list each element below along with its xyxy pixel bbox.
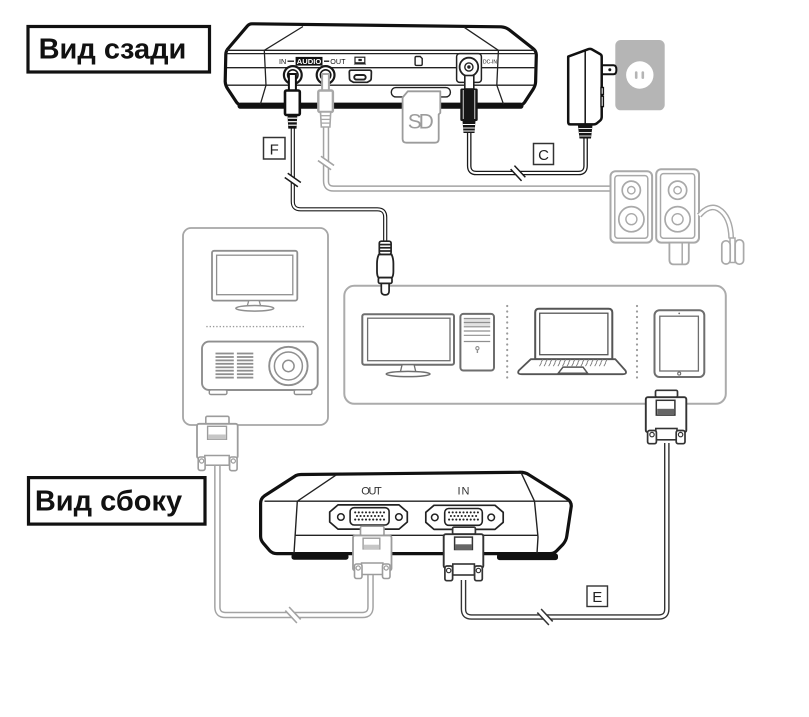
svg-text:AUDIO: AUDIO xyxy=(297,57,322,66)
svg-text:OUT: OUT xyxy=(361,486,382,498)
svg-text:SD: SD xyxy=(408,111,434,134)
svg-text:IN: IN xyxy=(279,57,286,66)
svg-text:E: E xyxy=(592,589,602,606)
svg-text:OUT: OUT xyxy=(330,57,346,66)
svg-text:DC-IN: DC-IN xyxy=(483,59,497,65)
svg-text:IN: IN xyxy=(458,486,470,498)
svg-text:Вид сзади: Вид сзади xyxy=(39,34,187,66)
svg-text:F: F xyxy=(270,142,279,159)
svg-text:C: C xyxy=(538,147,549,164)
svg-text:Вид сбоку: Вид сбоку xyxy=(35,486,182,518)
